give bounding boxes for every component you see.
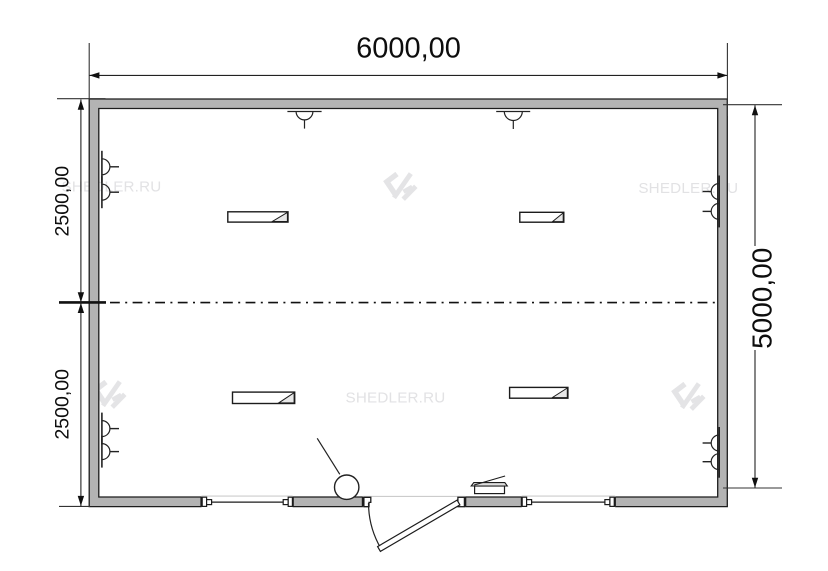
svg-text:2500,00: 2500,00 [51,166,73,237]
svg-text:6000,00: 6000,00 [356,33,461,65]
svg-text:2500,00: 2500,00 [51,369,73,440]
svg-text:5000,00: 5000,00 [747,248,778,349]
